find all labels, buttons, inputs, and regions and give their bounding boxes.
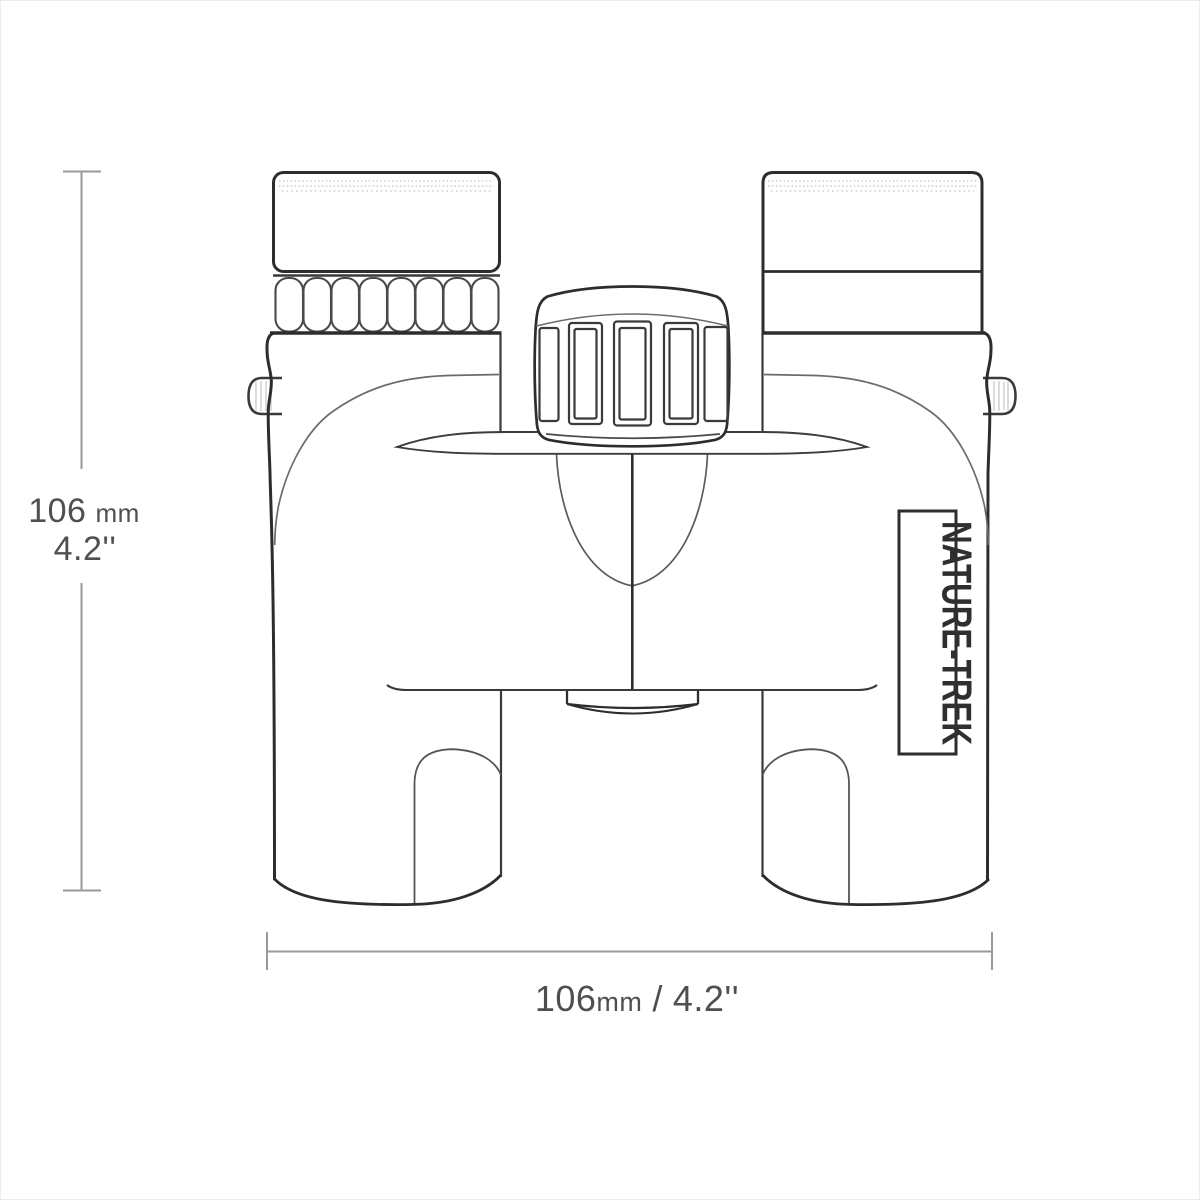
focus-wheel xyxy=(535,287,730,447)
hinge-cap xyxy=(567,691,698,714)
left-barrel-seam xyxy=(275,375,499,546)
width-dimension-text: 106mm/4.2'' xyxy=(535,978,739,1019)
left-eyepiece xyxy=(270,173,502,334)
left-inner-arch xyxy=(415,749,502,903)
right-inner-arch xyxy=(763,749,850,903)
focus-wheel-body xyxy=(535,287,730,447)
left-strap-lug xyxy=(249,378,283,414)
brand-label: NATURE-TREK xyxy=(899,511,981,754)
left-eyecup-knurl-band xyxy=(273,276,500,332)
left-eyecup xyxy=(274,173,500,272)
left-barrel-bottom xyxy=(275,875,502,905)
width-dimension-lines xyxy=(267,932,992,970)
width-dimension: 106mm/4.2'' xyxy=(267,932,992,1019)
central-hinge xyxy=(387,455,877,714)
product-diagram-page: NATURE-TREK 106mm 4.2'' 106mm/4.2'' xyxy=(0,0,1200,1200)
brand-label-text: NATURE-TREK xyxy=(934,521,981,745)
height-dimension-inch-text: 4.2'' xyxy=(54,530,117,568)
height-dimension: 106mm 4.2'' xyxy=(28,172,140,891)
right-eyepiece xyxy=(762,173,986,334)
right-barrel-bottom xyxy=(763,875,990,905)
binoculars-diagram: NATURE-TREK 106mm 4.2'' 106mm/4.2'' xyxy=(1,1,1200,1200)
height-dimension-mm-text: 106mm xyxy=(28,492,140,530)
left-barrel xyxy=(267,333,501,905)
right-eyecup xyxy=(763,173,982,333)
